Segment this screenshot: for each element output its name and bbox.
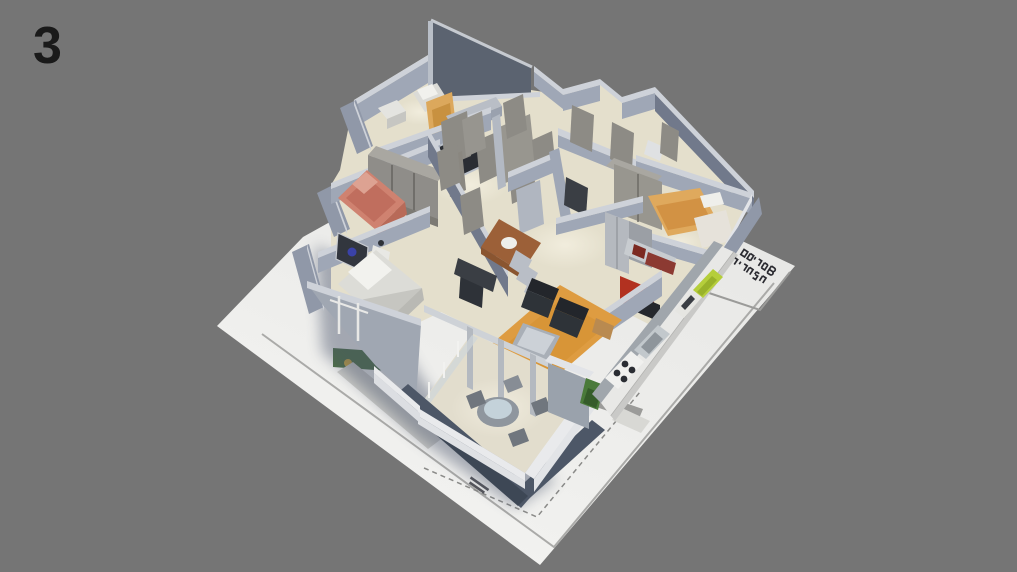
svg-text:3: 3 [33,17,62,75]
